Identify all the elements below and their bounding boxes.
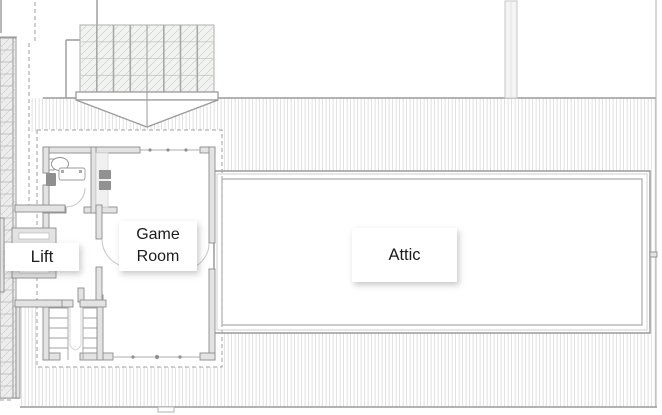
appliance-icon (99, 170, 111, 179)
glazed-side-strip (0, 37, 17, 398)
stair-walkline (70, 302, 81, 350)
floor-plan-canvas: Lift Game Room Attic (0, 0, 662, 415)
tap-icon (79, 170, 82, 173)
chimney (505, 1, 517, 98)
vanity-icon (59, 168, 85, 180)
duct-closet (96, 153, 108, 207)
room-label-lift: Lift (5, 243, 79, 271)
bottom-edge-tab (158, 407, 174, 412)
lift-door-icon (19, 233, 49, 239)
sink-icon (46, 173, 56, 186)
appliance-icon (99, 181, 111, 190)
tap-icon (61, 170, 64, 173)
room-label-attic: Attic (352, 228, 457, 282)
room-label-game-room: Game Room (119, 221, 197, 271)
wall-connector (650, 252, 657, 257)
floor-plan-drawing (0, 0, 662, 415)
